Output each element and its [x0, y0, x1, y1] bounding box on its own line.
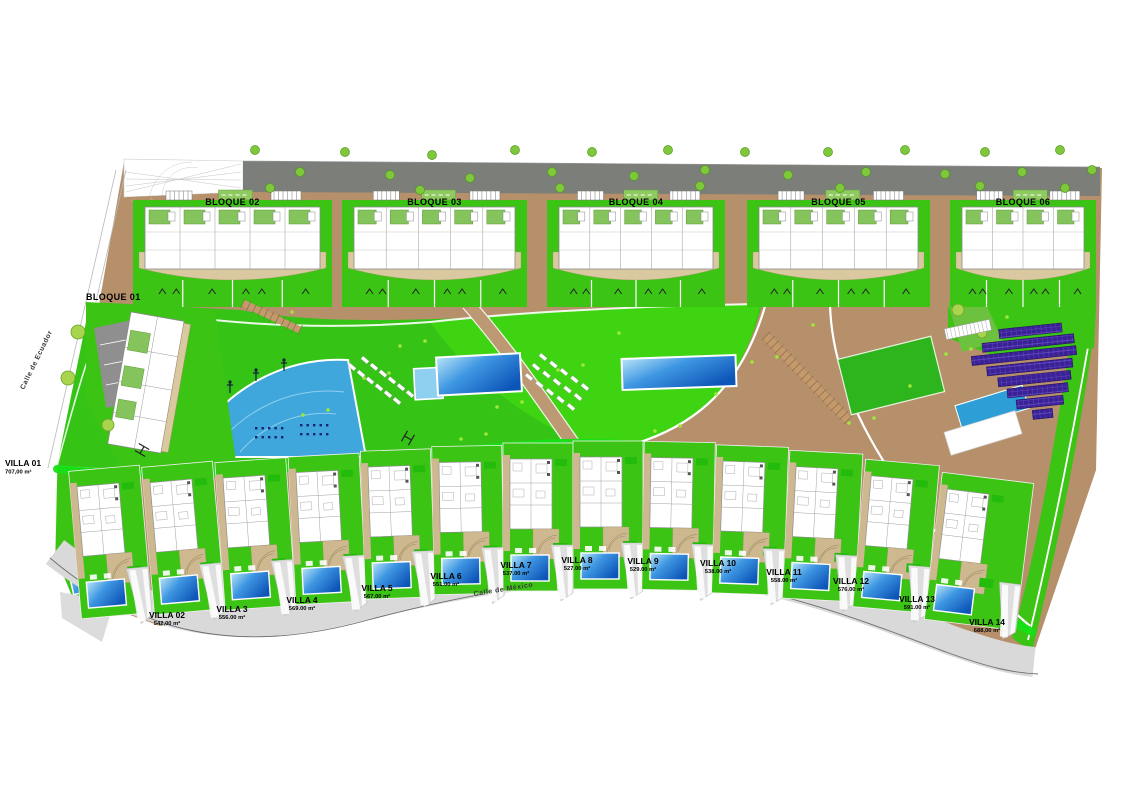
roof-garden: [184, 210, 205, 224]
roof-garden: [455, 210, 473, 224]
shrub-dot: [969, 347, 973, 351]
villa-area-label: 576.00 m²: [838, 586, 864, 593]
play-equipment-dot: [326, 433, 328, 435]
tree-icon: [630, 172, 639, 181]
roof-garden: [858, 210, 876, 224]
tree-icon: [102, 419, 114, 431]
roof-garden: [795, 210, 813, 224]
shrub-dot: [495, 405, 499, 409]
tree-icon: [428, 151, 437, 160]
play-equipment-dot: [320, 424, 322, 426]
roof-garden: [625, 210, 642, 224]
villa-area-label: 591.00 m²: [904, 604, 930, 611]
tree-icon: [341, 148, 350, 157]
shrub-dot: [775, 355, 779, 359]
roof-garden: [289, 210, 310, 224]
bloque-plot: [950, 190, 1096, 307]
street-label-ecuador: Calle de Ecuador: [20, 330, 55, 391]
tree-icon: [901, 146, 910, 155]
tree-icon: [664, 146, 673, 155]
tree-icon: [1088, 166, 1097, 175]
villa-label: VILLA 11: [766, 567, 802, 577]
shrub-dot: [847, 421, 851, 425]
villa-label: VILLA 8: [561, 555, 593, 565]
tree-icon: [824, 148, 833, 157]
shrub-dot: [678, 424, 682, 428]
villa-label: VILLA 12: [833, 576, 869, 586]
play-equipment-dot: [281, 436, 283, 438]
villa-plot: [288, 453, 367, 614]
shrub-dot: [1005, 315, 1009, 319]
roof-garden: [1058, 210, 1075, 224]
shrub-dot: [484, 432, 488, 436]
roof-garden: [422, 210, 440, 224]
shrub-dot: [290, 310, 294, 314]
roof-garden: [686, 210, 703, 224]
tree-icon: [588, 148, 597, 157]
shrub-dot: [326, 408, 330, 412]
villa-plot: [642, 441, 716, 600]
play-equipment-dot: [313, 433, 315, 435]
tree-icon: [952, 304, 964, 316]
roof-garden: [966, 210, 983, 224]
shrub-dot: [520, 400, 524, 404]
block-label: BLOQUE 05: [811, 197, 866, 207]
shrub-dot: [301, 413, 305, 417]
roof-garden: [219, 210, 240, 224]
tree-icon: [696, 182, 705, 191]
tree-icon: [416, 186, 425, 195]
roof-garden: [763, 210, 781, 224]
block-label: BLOQUE 06: [996, 197, 1051, 207]
roof-garden: [827, 210, 845, 224]
tree-icon: [1018, 168, 1027, 177]
villa-label: VILLA 02: [149, 610, 185, 620]
tree-icon: [251, 146, 260, 155]
tree-icon: [61, 371, 75, 385]
play-equipment-dot: [300, 424, 302, 426]
tree-icon: [981, 148, 990, 157]
villa-plot: [69, 465, 154, 629]
tree-icon: [741, 148, 750, 157]
villa-area-label: 558.00 m²: [771, 577, 797, 584]
villa-area-label: 551.00 m²: [433, 581, 459, 588]
bloque-plot: [133, 190, 332, 307]
villa-pool: [934, 584, 975, 614]
villa-area-label: 569.00 m²: [289, 605, 315, 612]
villa-plot: [923, 472, 1034, 640]
tree-icon: [548, 168, 557, 177]
villa-area-label: 688,00 m²: [974, 627, 1000, 634]
bloque-plot: [547, 190, 725, 307]
villa-area-label: 529.00 m²: [630, 566, 656, 573]
tree-icon: [296, 168, 305, 177]
shrub-dot: [944, 352, 948, 356]
play-equipment-dot: [255, 436, 257, 438]
shrub-dot: [653, 429, 657, 433]
play-equipment-dot: [307, 433, 309, 435]
roof-garden: [358, 210, 376, 224]
tree-icon: [266, 184, 275, 193]
shrub-dot: [811, 323, 815, 327]
villa-plot: [503, 443, 573, 601]
play-equipment-dot: [262, 427, 264, 429]
villa-pool: [86, 579, 126, 608]
villa-area-label: 538.00 m²: [705, 568, 731, 575]
tree-icon: [556, 184, 565, 193]
villa-pool: [302, 566, 341, 594]
villa-label: VILLA 10: [700, 558, 736, 568]
roof-garden: [890, 210, 908, 224]
villa-plot: [142, 461, 227, 625]
play-equipment-dot: [268, 427, 270, 429]
block-label: BLOQUE 03: [407, 197, 462, 207]
tree-icon: [836, 184, 845, 193]
roof-garden: [254, 210, 275, 224]
shrub-dot: [617, 331, 621, 335]
roof-garden: [997, 210, 1014, 224]
shrub-dot: [459, 437, 463, 441]
roof-garden: [1027, 210, 1044, 224]
play-equipment-dot: [307, 424, 309, 426]
solar-panel-row: [1032, 408, 1053, 419]
play-equipment-dot: [275, 427, 277, 429]
tree-icon: [466, 174, 475, 183]
tree-icon: [862, 168, 871, 177]
shrub-dot: [714, 392, 718, 396]
bloque-plot: [747, 190, 930, 307]
tree-icon: [976, 182, 985, 191]
tree-icon: [784, 171, 793, 180]
roof-garden: [594, 210, 611, 224]
play-equipment-dot: [300, 433, 302, 435]
roof-garden: [487, 210, 505, 224]
villa-area-label: 527.00 m²: [564, 565, 590, 572]
play-equipment-dot: [262, 436, 264, 438]
villa-label: VILLA 6: [430, 571, 462, 581]
roof-garden: [149, 210, 170, 224]
villa-label: VILLA 3: [216, 604, 248, 614]
villa-label: VILLA 4: [286, 595, 318, 605]
tree-icon: [386, 171, 395, 180]
site-plan-drawing: BLOQUE 01 VILLA 01 707,00 m² Calle de Ec…: [0, 0, 1131, 800]
villa-area-label: 537.00 m²: [503, 570, 529, 577]
shrub-dot: [387, 371, 391, 375]
block-label: BLOQUE 01: [86, 292, 141, 302]
villa-pool: [231, 571, 271, 600]
villa-area-label: 542,00 m²: [154, 620, 180, 627]
villa-area-label: 556.00 m²: [219, 614, 245, 621]
villa-plot: [215, 458, 297, 621]
community-pool-2: [622, 355, 737, 390]
shrub-dot: [581, 363, 585, 367]
villa-label: VILLA 13: [899, 594, 935, 604]
villa-plot: [573, 441, 643, 599]
play-equipment-dot: [275, 436, 277, 438]
villa-label: VILLA 5: [361, 583, 393, 593]
roof-garden: [390, 210, 408, 224]
villa-pool: [159, 575, 199, 604]
blocks-layer: [133, 190, 1096, 307]
play-equipment-dot: [326, 424, 328, 426]
tree-icon: [1061, 184, 1070, 193]
play-equipment-dot: [281, 427, 283, 429]
site-plan: BLOQUE 01 VILLA 01 707,00 m² Calle de Ec…: [0, 0, 1131, 800]
villa-area-label: 707,00 m²: [5, 469, 31, 476]
roof-garden: [655, 210, 672, 224]
tree-icon: [941, 170, 950, 179]
tree-icon: [511, 146, 520, 155]
tree-icon: [1056, 146, 1065, 155]
play-equipment-dot: [313, 424, 315, 426]
villa-label: VILLA 7: [500, 560, 532, 570]
shrub-dot: [750, 360, 754, 364]
shrub-dot: [872, 416, 876, 420]
shrub-dot: [908, 384, 912, 388]
block-label: BLOQUE 02: [205, 197, 260, 207]
play-equipment-dot: [268, 436, 270, 438]
villa-area-label: 567.00 m²: [364, 593, 390, 600]
roof-garden: [563, 210, 580, 224]
villa-label: VILLA 01: [5, 458, 41, 468]
villa-label: VILLA 14: [969, 617, 1005, 627]
tree-icon: [701, 166, 710, 175]
shrub-dot: [423, 339, 427, 343]
tree-icon: [71, 325, 85, 339]
block-label: BLOQUE 04: [609, 197, 664, 207]
play-equipment-dot: [320, 433, 322, 435]
bloque-plot: [342, 190, 527, 307]
shrub-dot: [556, 368, 560, 372]
villa-label: VILLA 9: [627, 556, 659, 566]
shrub-dot: [398, 344, 402, 348]
play-equipment-dot: [255, 427, 257, 429]
